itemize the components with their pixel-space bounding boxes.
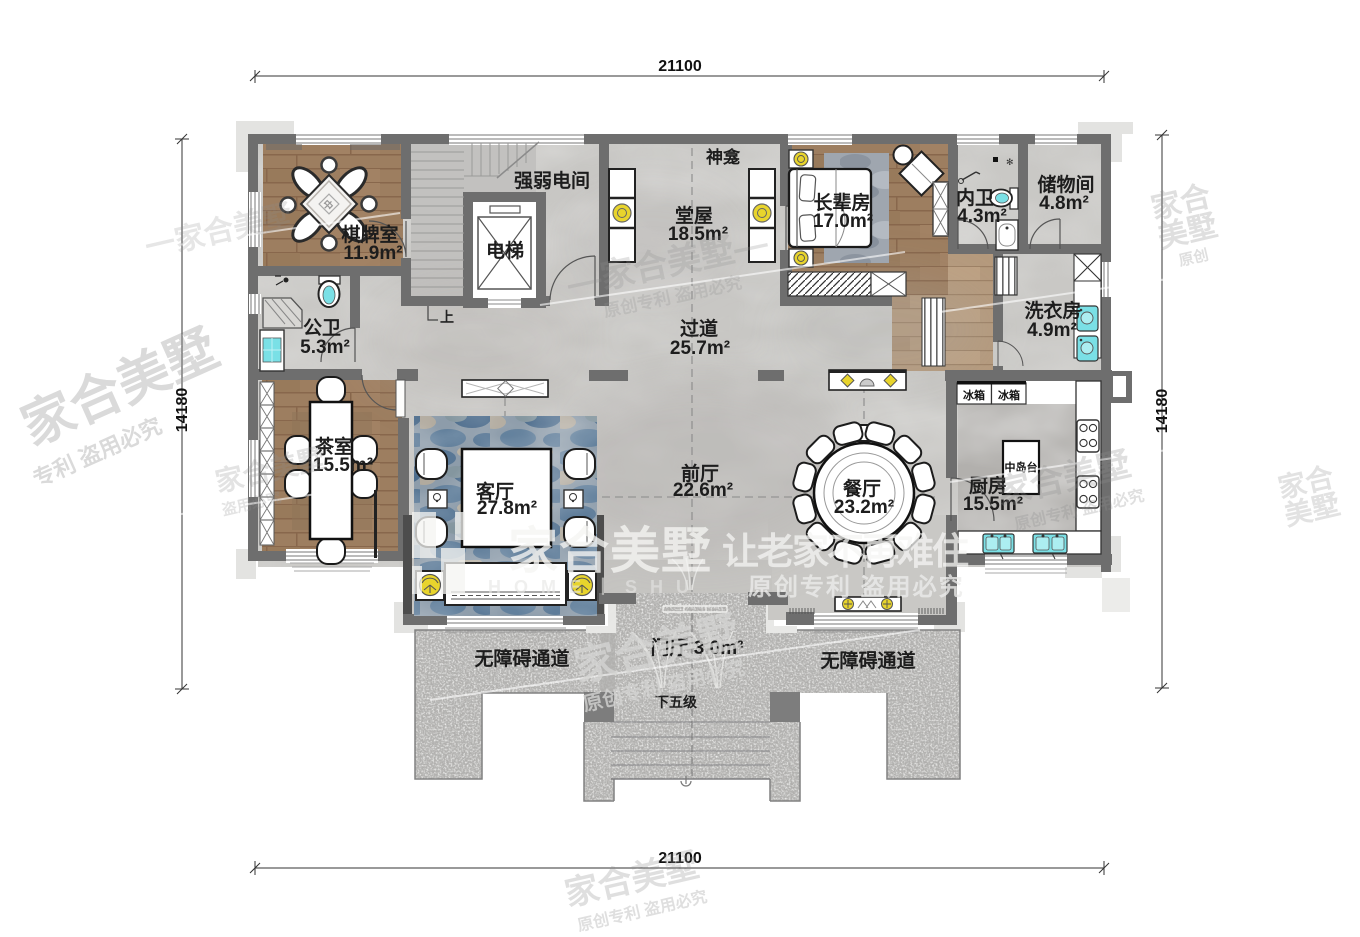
svg-text:过道: 过道 bbox=[680, 317, 718, 340]
svg-text:17.0m²: 17.0m² bbox=[813, 211, 873, 232]
svg-text:公卫: 公卫 bbox=[303, 317, 341, 339]
svg-text:无障碍通道: 无障碍通道 bbox=[820, 649, 915, 672]
svg-text:14180: 14180 bbox=[1154, 389, 1171, 434]
svg-text:冰箱: 冰箱 bbox=[963, 388, 985, 402]
svg-text:强弱电间: 强弱电间 bbox=[514, 169, 590, 192]
svg-text:冰箱: 冰箱 bbox=[998, 388, 1020, 402]
svg-text:电梯: 电梯 bbox=[486, 239, 524, 262]
svg-text:让老家不再难住: 让老家不再难住 bbox=[722, 531, 969, 572]
svg-text:21100: 21100 bbox=[658, 58, 702, 75]
svg-text:4.8m²: 4.8m² bbox=[1039, 193, 1089, 214]
svg-text:✻: ✻ bbox=[1006, 157, 1014, 167]
svg-text:5.3m²: 5.3m² bbox=[300, 337, 350, 358]
svg-text:家合美墅: 家合美墅 bbox=[508, 523, 712, 579]
svg-text:11.9m²: 11.9m² bbox=[343, 243, 402, 264]
svg-text:原创专利 盗用必究: 原创专利 盗用必究 bbox=[748, 573, 965, 601]
svg-text:神龛: 神龛 bbox=[706, 147, 741, 167]
svg-text:22.6m²: 22.6m² bbox=[673, 480, 733, 501]
svg-text:27.8m²: 27.8m² bbox=[477, 498, 537, 519]
svg-text:4.3m²: 4.3m² bbox=[957, 206, 1007, 227]
svg-text:HOME丨SHU: HOME丨SHU bbox=[488, 577, 702, 597]
svg-text:4.9m²: 4.9m² bbox=[1027, 320, 1077, 341]
svg-text:上: 上 bbox=[440, 309, 454, 325]
svg-text:无障碍通道: 无障碍通道 bbox=[474, 647, 569, 670]
svg-text:23.2m²: 23.2m² bbox=[834, 497, 894, 518]
svg-text:25.7m²: 25.7m² bbox=[670, 338, 730, 359]
svg-text:洗衣房: 洗衣房 bbox=[1024, 299, 1081, 322]
